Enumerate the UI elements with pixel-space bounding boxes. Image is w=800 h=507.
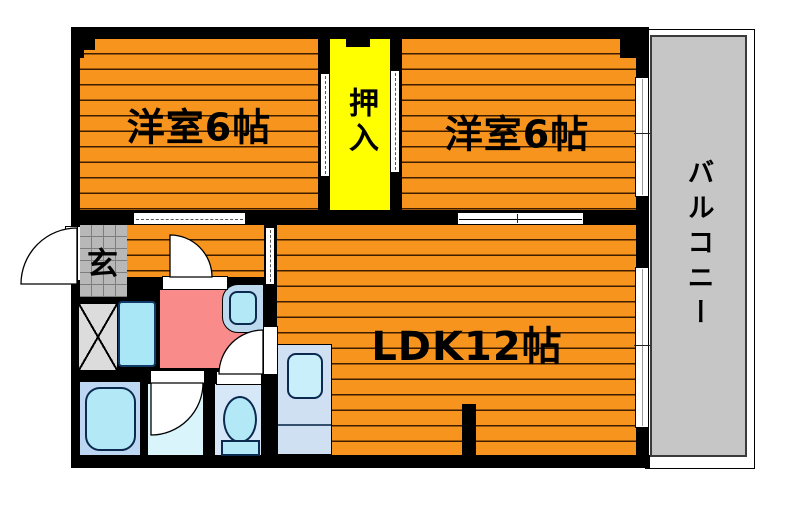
doorway-ldk-washroom [263, 326, 278, 375]
wall-bath-shower [140, 372, 148, 456]
closet-notch [346, 27, 370, 47]
wall-left-upper [71, 27, 80, 227]
shower-room-floor [148, 384, 203, 455]
doorway-shower [150, 370, 205, 384]
kitchen-counter-divider [278, 424, 331, 426]
floor-plan: 洋室6帖 洋室6帖 LDK12帖 押入 バルコニー 玄 [0, 0, 800, 507]
doorway-toilet [216, 371, 262, 385]
closet-sliding-door-left [320, 73, 330, 177]
closet-sliding-door-right [390, 70, 400, 173]
window-bedroom2 [635, 77, 649, 197]
ldk-label: LDK12帖 [371, 314, 562, 372]
window-ldk [635, 267, 649, 428]
pillar-top-left-step [80, 39, 95, 50]
wall-right-mid [636, 194, 649, 270]
wall-right-bottom [636, 426, 649, 468]
doorway-washroom [162, 276, 228, 290]
bedroom1-label: 洋室6帖 [127, 97, 271, 152]
pillar-top-right [620, 27, 640, 58]
sliding-door-hall-ldk [265, 227, 275, 285]
wall-shower-toilet [203, 372, 215, 456]
entrance-label: 玄 [87, 239, 119, 284]
wash-basin [229, 291, 257, 325]
bathtub [85, 387, 136, 451]
toilet-bowl [223, 396, 257, 443]
sliding-door-bedroom1 [133, 212, 246, 225]
wall-bottom [71, 455, 650, 468]
closet-label: 押入 [334, 82, 386, 162]
balcony-label: バルコニー [672, 155, 724, 335]
bedroom2-label: 洋室6帖 [445, 104, 589, 159]
kitchen-sink [287, 353, 323, 399]
toilet-tank [221, 440, 260, 456]
laundry-pan [118, 301, 156, 367]
wall-ldk-stub [462, 404, 476, 456]
storage-x-box [78, 303, 118, 371]
wall-toilet-right [261, 372, 277, 456]
entrance-door-leaf [65, 226, 78, 283]
sliding-door-bedroom2 [457, 212, 584, 225]
